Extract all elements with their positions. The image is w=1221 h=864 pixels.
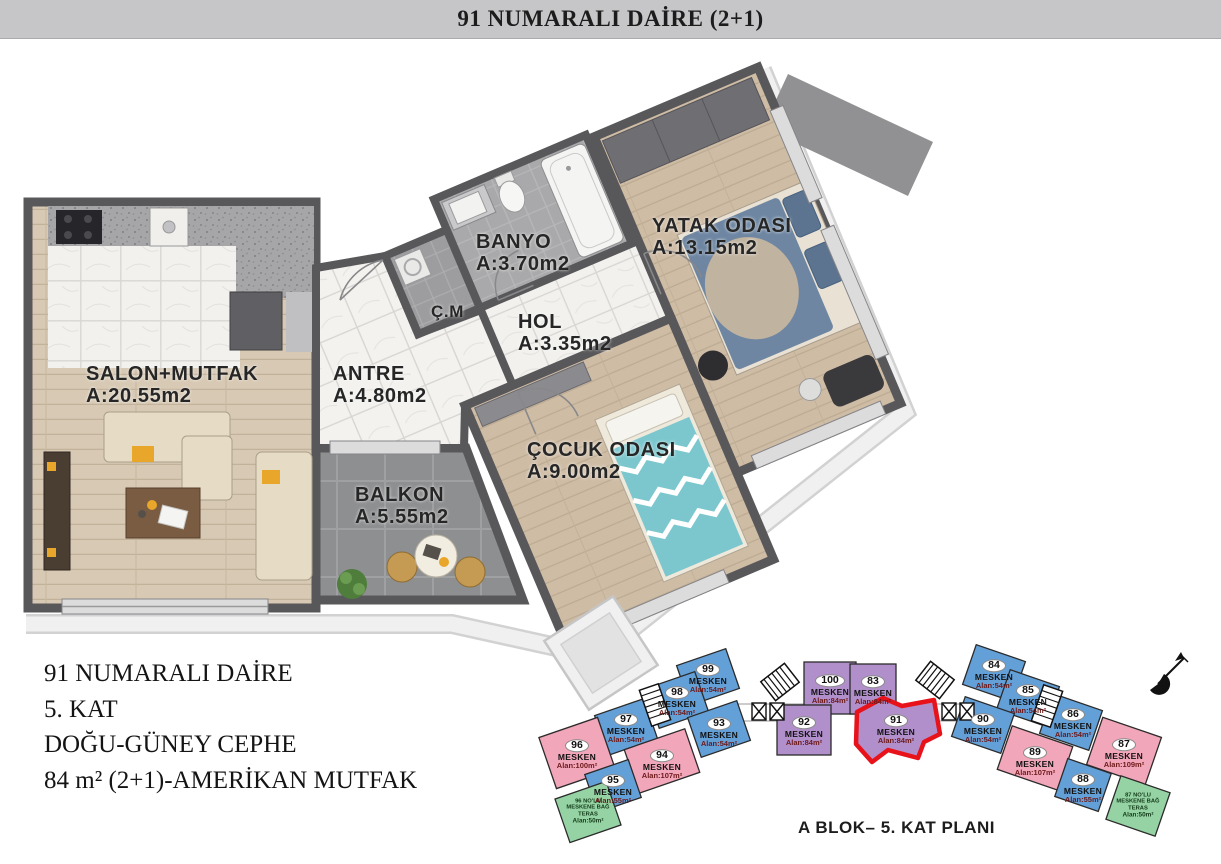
apartment-info: 91 NUMARALI DAİRE 5. KAT DOĞU-GÜNEY CEPH… — [44, 656, 417, 798]
room-label-yatak: YATAK ODASI A:13.15m2 — [652, 216, 792, 259]
room-label-salon: SALON+MUTFAK A:20.55m2 — [86, 364, 258, 407]
info-line-3: DOĞU-GÜNEY CEPHE — [44, 727, 417, 763]
info-line-1: 91 NUMARALI DAİRE — [44, 656, 417, 692]
room-label-cm: Ç.M — [431, 303, 464, 321]
keyplan-unit-92: 92 MESKEN Alan:84m² — [766, 713, 842, 747]
keyplan-unit-91: 91 MESKEN Alan:84m² — [858, 711, 934, 745]
page: 91 NUMARALI DAİRE (2+1) — [0, 0, 1221, 864]
keyplan-teras-right-label: 87 NO'LU MESKENE BAĞ TERAS Alan:50m² — [1103, 793, 1173, 820]
keyplan-unit-87: 87 MESKEN Alan:109m² — [1086, 735, 1162, 769]
room-label-cocuk: ÇOCUK ODASI A:9.00m2 — [527, 440, 676, 483]
kitchen-floor — [48, 246, 240, 368]
keyplan-unit-83: 83 MESKEN Alan:84m² — [835, 672, 911, 706]
keyplan-unit-90: 90 MESKEN Alan:54m² — [945, 710, 1021, 744]
room-label-hol: HOL A:3.35m2 — [518, 312, 612, 355]
plant — [337, 569, 367, 599]
keyplan-caption: A BLOK– 5. KAT PLANI — [798, 818, 995, 838]
cushion — [262, 470, 280, 484]
room-label-antre: ANTRE A:4.80m2 — [333, 364, 427, 407]
north-arrow-icon — [1150, 652, 1188, 695]
balcony-chair — [387, 552, 417, 582]
fridge — [230, 292, 282, 350]
keyplan-unit-93: 93 MESKEN Alan:54m² — [681, 714, 757, 748]
cushion — [132, 446, 154, 462]
info-line-4: 84 m² (2+1)-AMERİKAN MUTFAK — [44, 763, 417, 799]
keyplan-unit-86: 86 MESKEN Alan:54m² — [1035, 705, 1111, 739]
room-label-balkon: BALKON A:5.55m2 — [355, 485, 449, 528]
cooktop — [56, 210, 102, 244]
keyplan-unit-96: 96 MESKEN Alan:100m² — [539, 736, 615, 770]
info-line-2: 5. KAT — [44, 692, 417, 728]
room-label-banyo: BANYO A:3.70m2 — [476, 232, 570, 275]
stairs-icon — [916, 661, 954, 698]
balcony-chair — [455, 557, 485, 587]
counter-end — [286, 292, 312, 352]
keyplan-teras-left-label: 96 NO'LU MESKENE BAĞ TERAS Alan:50m² — [553, 799, 623, 826]
